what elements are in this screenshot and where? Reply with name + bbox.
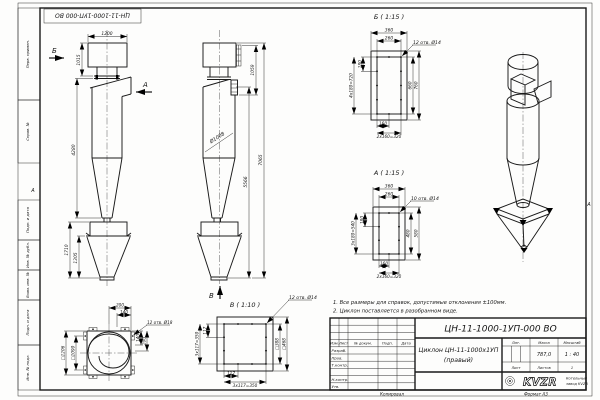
- dim-label: 4280: [71, 144, 77, 155]
- holes-note: 12 отв. Ø14: [413, 39, 441, 46]
- dim-label: 360: [385, 28, 394, 34]
- lit-label: Лит.: [511, 341, 520, 345]
- dim-label: 200: [116, 303, 124, 308]
- dim-label: 2x160=320: [377, 274, 402, 279]
- company-name-line1: Котельный: [566, 377, 588, 381]
- view-arrow-b-label: Б: [52, 47, 57, 55]
- detail-title: Б ( 1:15 ): [374, 13, 404, 21]
- footer-format: Формат А3: [524, 392, 548, 397]
- stamp-text: ЦН-11-1000-1УП-000 ВО: [55, 12, 130, 19]
- col-doc: № докум.: [353, 342, 372, 346]
- margin-label: Перв. примен.: [25, 40, 30, 69]
- dim-label: 160: [380, 261, 388, 266]
- dim-label: 260: [385, 36, 394, 42]
- scale-label: Масштаб: [563, 341, 581, 345]
- dim-label: 3x117=350: [233, 383, 258, 388]
- dim-label: 160: [379, 121, 387, 126]
- company-name-line2: завод KVZR: [566, 382, 588, 386]
- role-razrab: Разраб.: [332, 348, 347, 353]
- margin-label: Подп. и дата: [25, 309, 30, 336]
- note-line-2: 2. Циклон поставляется в разобранном вид…: [333, 309, 458, 315]
- dim-label: 360: [385, 184, 394, 190]
- plan-view: 200 140 12 отв. Ø18 140 200 □1206 □1090: [60, 303, 172, 383]
- col-list: Лист: [338, 342, 349, 346]
- note-line-1: 1. Все размеры для справок, допустимые о…: [333, 300, 506, 306]
- zone-marker-left: А: [30, 188, 35, 194]
- dim-label: 117: [202, 326, 207, 334]
- drawing-canvas: Перв. примен. Справ. № Подп. и дата Инв.…: [0, 0, 600, 400]
- sheets-value: 1: [571, 366, 573, 370]
- dim-label: 7065: [258, 154, 264, 165]
- detail-a-view: А ( 1:15 ) 360 260 10 отв. Ø14 180 3x180…: [350, 169, 439, 279]
- footer-copied: Копировал: [380, 392, 404, 397]
- holes-note: 12 отв. Ø14: [289, 294, 317, 301]
- dim-label: 200: [141, 337, 146, 345]
- detail-title: А ( 1:15 ): [373, 169, 404, 177]
- role-prov: Пров.: [332, 355, 343, 360]
- dim-label: Ø1008: [207, 130, 226, 145]
- view-arrow-a-label: А: [142, 81, 148, 89]
- dim-label: 140: [135, 334, 140, 342]
- role-nkontr: Н.контр.: [332, 377, 349, 382]
- part-name-line1: Циклон ЦН-11-1000х1УП: [419, 347, 499, 354]
- margin-label: Справ. №: [25, 122, 30, 141]
- dim-label: 3x117=350: [194, 331, 199, 356]
- sheets-label: Листов: [536, 366, 550, 370]
- dim-label: □1206: [60, 345, 65, 360]
- isometric-view: [493, 52, 553, 262]
- dim-label: 660: [407, 81, 412, 89]
- dim-label: 1200: [101, 31, 112, 37]
- detail-v-view: В ( 1:10 ) 12 отв. Ø14 117 3x117=350 □38…: [194, 294, 317, 388]
- margin-label: Взам. инв. №: [25, 272, 30, 298]
- side-view: Ø1008 1059 5566 7065 В: [197, 30, 266, 300]
- dim-label: □1090: [70, 345, 75, 360]
- front-view: Б А 1200: [49, 30, 152, 286]
- mass-label: Масса: [538, 341, 549, 345]
- col-date: Дата: [400, 342, 410, 346]
- dim-label: 2x160=320: [377, 134, 402, 139]
- dim-label: 180: [357, 60, 362, 68]
- dim-label: □468: [281, 338, 286, 350]
- dim-label: 260: [385, 192, 394, 198]
- company-logo-icon: [506, 377, 515, 386]
- zone-marker-right: А: [586, 202, 591, 208]
- title-block: ЦН-11-1000-1УП-000 ВО Циклон ЦН-11-1000х…: [330, 318, 588, 390]
- margin-label: Инв. № подл.: [25, 354, 30, 380]
- dim-label: 480: [405, 229, 410, 237]
- dim-label: 1305: [73, 252, 79, 263]
- mass-value: 787,0: [537, 352, 551, 358]
- holes-note: 10 отв. Ø14: [411, 195, 439, 202]
- scale-value: 1 : 40: [565, 352, 579, 358]
- col-izm: Изм.: [330, 342, 338, 346]
- dim-label: 180: [359, 216, 364, 224]
- col-sign: Подп.: [382, 342, 393, 346]
- margin-label: Инв. № дубл.: [25, 242, 30, 268]
- role-tkontr: Т.контр.: [332, 363, 348, 368]
- role-utv: Утв.: [332, 384, 340, 389]
- dim-label: 1059: [250, 64, 256, 75]
- margin-label: Подп. и дата: [25, 206, 30, 233]
- dim-label: 4x180=720: [348, 73, 353, 98]
- detail-b-view: Б ( 1:15 ) 360 260 12 отв. Ø14 180 4x180…: [348, 13, 441, 139]
- detail-title: В ( 1:10 ): [230, 301, 260, 309]
- dim-label: 760: [413, 81, 418, 89]
- doc-number: ЦН-11-1000-1УП-000 ВО: [444, 325, 556, 335]
- drawing-sheet: Перв. примен. Справ. № Подп. и дата Инв.…: [0, 0, 600, 400]
- notes: 1. Все размеры для справок, допустимые о…: [333, 300, 506, 315]
- view-arrow-v-label: В: [209, 292, 214, 300]
- dim-label: 140: [120, 310, 128, 315]
- dim-label: □388: [274, 338, 279, 350]
- part-name-line2: (правый): [444, 357, 473, 364]
- dim-label: 580: [413, 229, 418, 237]
- dim-label: 3x180=540: [350, 221, 355, 246]
- dim-label: 117: [227, 371, 235, 376]
- company-logo-text: KVZR: [523, 377, 557, 389]
- dim-label: 5566: [243, 176, 249, 187]
- dim-label: 1710: [64, 244, 70, 255]
- sheet-label: Лист: [510, 366, 521, 370]
- dim-label: 1015: [76, 54, 82, 65]
- holes-note: 12 отв. Ø18: [147, 320, 173, 325]
